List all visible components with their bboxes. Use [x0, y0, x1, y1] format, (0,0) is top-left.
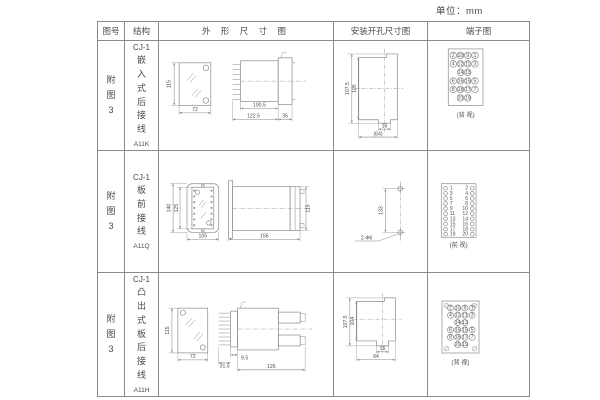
svg-text:2: 2	[449, 305, 452, 311]
svg-text:2: 2	[452, 53, 455, 59]
svg-text:6: 6	[452, 78, 455, 84]
row-2-structure: CJ-1 板前接线 A11Q	[125, 151, 159, 273]
svg-text:8: 8	[449, 335, 452, 341]
svg-text:20: 20	[455, 342, 461, 348]
col-header-mounting: 安装开孔尺寸图	[334, 22, 428, 41]
col-header-structure: 结构	[125, 22, 159, 41]
fig-no-text: 附图3	[106, 73, 117, 119]
svg-text:12: 12	[455, 313, 461, 319]
svg-text:11: 11	[465, 61, 470, 67]
row-2-terminal-diagram: 1234567891011121314151617181920 (前 视)	[428, 151, 529, 272]
dim-label: 156	[260, 234, 269, 240]
svg-text:19: 19	[450, 232, 456, 238]
row-1-terminal-cell: 2109141211314136161558181772019 (背 视)	[428, 41, 529, 151]
model-text: CJ-1	[133, 275, 150, 284]
svg-text:16: 16	[458, 78, 464, 84]
svg-text:7: 7	[471, 335, 474, 341]
svg-text:14: 14	[458, 70, 464, 76]
dim-label: 64	[373, 354, 379, 360]
svg-text:7: 7	[474, 87, 477, 93]
svg-text:12: 12	[458, 61, 464, 67]
row-2-mounting-drawing: 133 2-Φ6	[334, 151, 427, 272]
row-1-structure: CJ-1 嵌入式后接线 A11K	[125, 41, 159, 151]
terminal-caption: (背 视)	[457, 111, 475, 119]
row-3-fig-no: 附图3	[98, 273, 125, 396]
svg-text:11: 11	[462, 313, 467, 319]
row-1-terminal-diagram: 2109141211314136161558181772019 (背 视)	[428, 41, 529, 150]
dim-label: (64)	[373, 131, 382, 137]
svg-text:18: 18	[458, 87, 464, 93]
svg-text:15: 15	[462, 327, 468, 333]
terminal-caption: (前 视)	[450, 241, 468, 249]
dim-label: 16	[382, 123, 388, 129]
svg-text:19: 19	[462, 342, 468, 348]
svg-text:4: 4	[452, 61, 455, 67]
row-2-outline-cell: 140 125 105 156 115	[159, 151, 334, 273]
row-1-mounting-cell: 107.5 105 16 (64)	[334, 41, 428, 151]
model-text: CJ-1	[133, 43, 150, 52]
dim-label: 9.5	[241, 355, 248, 361]
svg-text:13: 13	[462, 320, 468, 326]
unit-label: 单位：mm	[436, 3, 483, 17]
dim-label: 107.5	[343, 315, 349, 328]
svg-text:1: 1	[471, 305, 474, 311]
code-text: A11H	[134, 387, 150, 394]
structure-text: 板前接线	[136, 184, 147, 240]
dim-label: 115	[305, 204, 311, 212]
terminal-grid: 2109141211314136161558181772019	[448, 305, 476, 348]
svg-text:15: 15	[465, 78, 471, 84]
dim-label: 115	[165, 326, 171, 334]
svg-text:1: 1	[474, 53, 477, 59]
svg-text:6: 6	[449, 327, 452, 333]
fig-no-text: 附图3	[106, 312, 117, 358]
dim-label: 16	[380, 346, 386, 352]
svg-text:10: 10	[458, 53, 464, 59]
row-2-fig-no: 附图3	[98, 151, 125, 273]
row-1-mounting-drawing: 107.5 105 16 (64)	[334, 41, 427, 150]
svg-text:5: 5	[471, 327, 474, 333]
svg-text:20: 20	[462, 232, 468, 238]
row-3-outline-cell: 115 72 9.5 31.5 126	[159, 273, 334, 396]
row-3-terminal-cell: 2109141211314136161558181772019 (背 视)	[428, 273, 529, 396]
row-1-fig-no: 附图3	[98, 41, 125, 151]
code-text: A11K	[134, 141, 149, 148]
model-text: CJ-1	[133, 173, 150, 182]
code-text: A11Q	[133, 243, 149, 250]
structure-text: 嵌入式后接线	[136, 54, 147, 138]
dim-label: 140	[167, 204, 173, 213]
dim-label: 133	[378, 206, 384, 215]
svg-text:9: 9	[463, 305, 466, 311]
spec-table: 图号 结构 外 形 尺 寸 图 安装开孔尺寸图 端子图 附图3 CJ-1 嵌入式…	[97, 21, 530, 397]
dim-label: 2-Φ6	[361, 235, 373, 241]
structure-text: 凸出式板后接线	[136, 286, 147, 384]
row-1-outline-cell: 115 72 100.5 122.5 35	[159, 41, 334, 151]
svg-text:10: 10	[455, 305, 461, 311]
svg-text:4: 4	[449, 313, 452, 319]
row-2-mounting-cell: 133 2-Φ6	[334, 151, 428, 273]
dim-label: 72	[192, 107, 198, 113]
dim-label: 31.5	[220, 363, 230, 369]
dim-label: 105	[199, 234, 208, 240]
dim-label: 126	[267, 364, 276, 370]
svg-text:18: 18	[455, 335, 461, 341]
terminal-strip: 1234567891011121314151617181920	[444, 186, 474, 238]
row-2-terminal-cell: 1234567891011121314151617181920 (前 视)	[428, 151, 529, 273]
row-3-mounting-drawing: 107.5 104 16 64	[334, 273, 427, 396]
dim-label: 100.5	[253, 103, 266, 109]
dim-label: 115	[167, 80, 173, 88]
svg-text:16: 16	[455, 327, 461, 333]
dim-label: 125	[174, 204, 180, 213]
row-1-outline-drawing: 115 72 100.5 122.5 35	[159, 41, 333, 150]
svg-text:17: 17	[462, 335, 468, 341]
dim-label: 105	[352, 84, 358, 93]
svg-text:19: 19	[465, 95, 471, 101]
dim-label: 122.5	[247, 114, 260, 120]
svg-text:3: 3	[471, 313, 474, 319]
svg-text:3: 3	[474, 61, 477, 67]
row-3-structure: CJ-1 凸出式板后接线 A11H	[125, 273, 159, 396]
row-2-outline-drawing: 140 125 105 156 115	[159, 151, 333, 272]
col-header-terminal: 端子图	[428, 22, 529, 41]
dim-label: 104	[350, 317, 356, 326]
dim-label: 35	[282, 114, 288, 120]
svg-text:13: 13	[465, 70, 471, 76]
svg-text:17: 17	[465, 87, 471, 93]
svg-text:20: 20	[458, 95, 464, 101]
fig-no-text: 附图3	[106, 189, 117, 235]
col-header-fig-no: 图号	[98, 22, 125, 41]
col-header-outline: 外 形 尺 寸 图	[159, 22, 334, 41]
dim-label: 107.5	[345, 82, 351, 95]
document-page: 单位：mm 图号 结构 外 形 尺 寸 图 安装开孔尺寸图 端子图 附图3 CJ…	[0, 0, 600, 400]
row-3-terminal-diagram: 2109141211314136161558181772019 (背 视)	[428, 273, 529, 396]
terminal-caption: (背 视)	[451, 359, 469, 367]
svg-text:5: 5	[474, 78, 477, 84]
terminal-grid: 2109141211314136161558181772019	[450, 52, 478, 101]
svg-text:14: 14	[455, 320, 461, 326]
dim-label: 72	[190, 354, 196, 360]
row-3-outline-drawing: 115 72 9.5 31.5 126	[159, 273, 333, 396]
row-3-mounting-cell: 107.5 104 16 64	[334, 273, 428, 396]
svg-text:9: 9	[466, 53, 469, 59]
svg-text:8: 8	[452, 87, 455, 93]
